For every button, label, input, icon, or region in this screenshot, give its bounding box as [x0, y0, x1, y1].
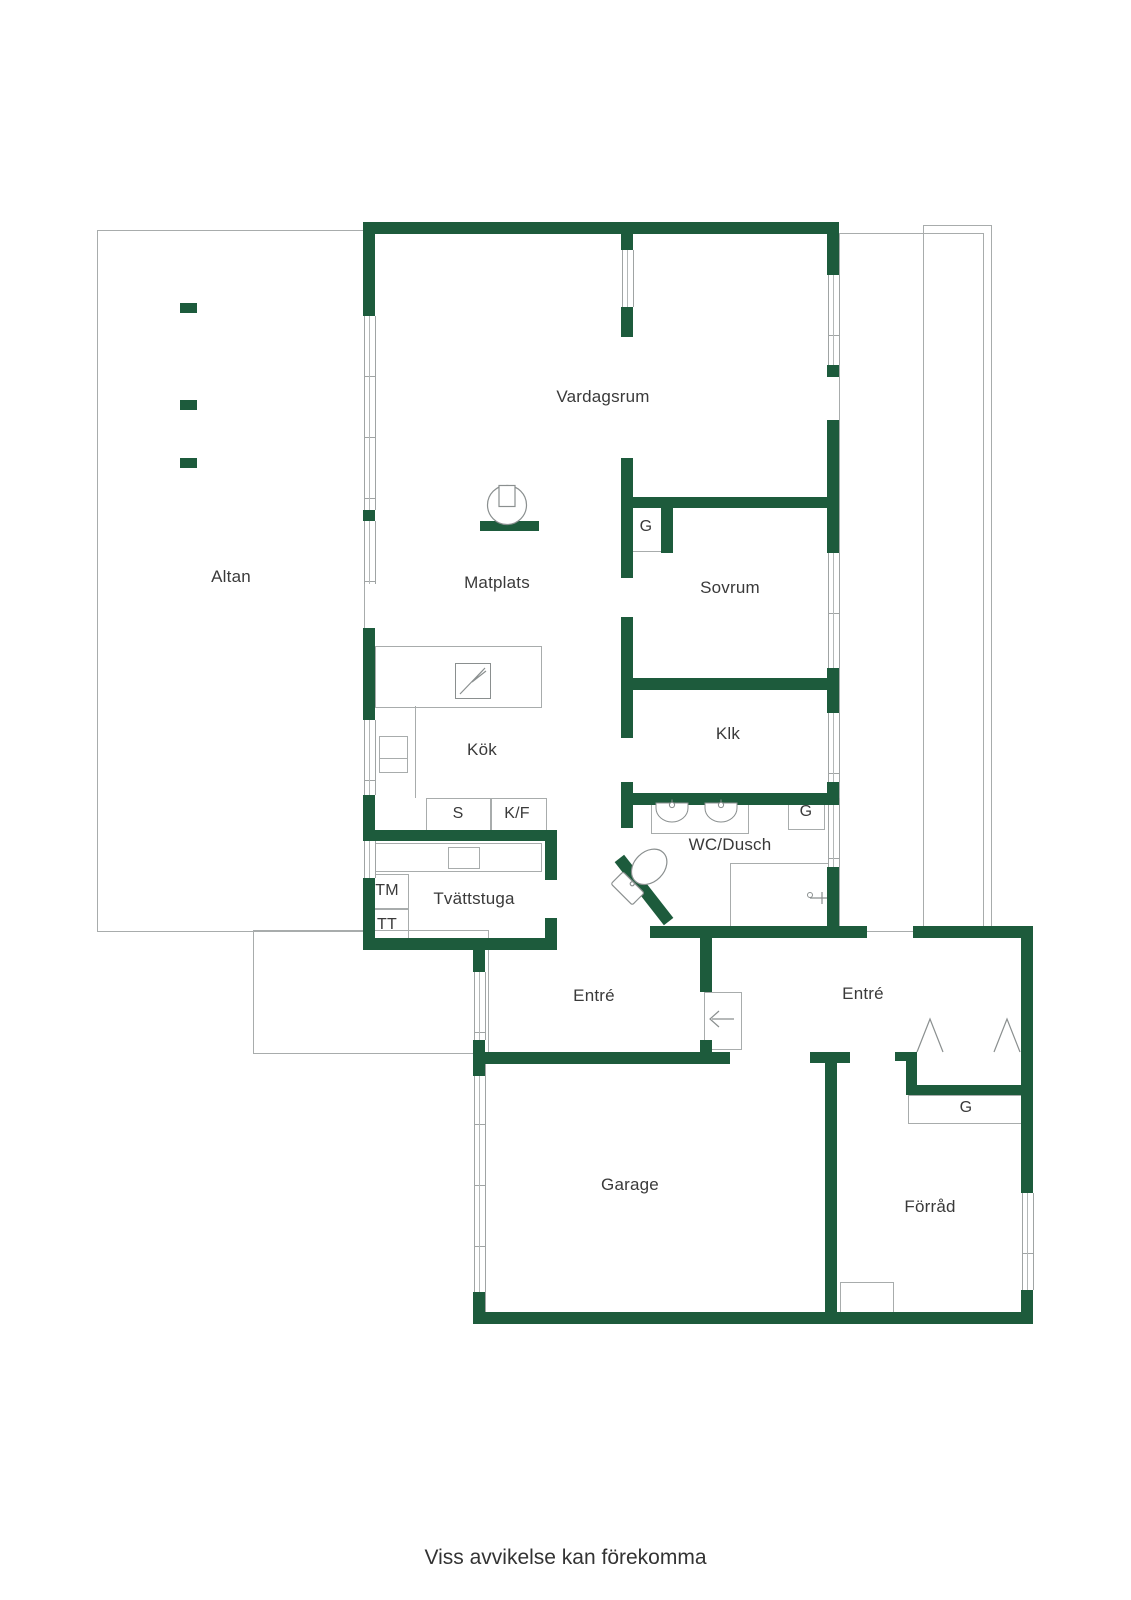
outline-box [448, 847, 480, 869]
direction-arrow-icon [706, 1004, 738, 1034]
wall-segment [363, 222, 839, 234]
room-label-entre-inner: Entré [573, 986, 615, 1006]
wall-segment [473, 1064, 485, 1076]
terrace-post [180, 303, 197, 313]
sink-icon [653, 799, 691, 831]
wall-segment [363, 830, 545, 841]
closet-label-g-sovrum: G [640, 518, 653, 536]
wall-segment [621, 458, 633, 578]
terrace-post [180, 458, 197, 468]
window [364, 720, 376, 795]
room-label-tvattstuga: Tvättstuga [433, 889, 514, 909]
room-label-klk: Klk [716, 724, 740, 744]
wall-segment [628, 678, 839, 690]
stove-icon [455, 663, 491, 699]
wall-segment [473, 1052, 730, 1064]
room-label-sovrum: Sovrum [700, 578, 760, 598]
room-label-kok: Kök [467, 740, 497, 760]
window [828, 713, 840, 782]
wall-segment [363, 628, 375, 720]
wall-segment [621, 782, 633, 828]
gray-line [633, 551, 661, 552]
wall-segment [363, 222, 375, 316]
wall-segment [827, 668, 839, 713]
toilet-icon [607, 838, 673, 914]
wall-segment [827, 365, 839, 377]
wall-segment [363, 510, 375, 521]
gray-line [415, 706, 416, 798]
outline-box [379, 736, 408, 759]
wall-segment [628, 497, 839, 508]
wall-segment [827, 420, 839, 553]
wall-segment [621, 234, 633, 250]
appliance-label-kf: K/F [504, 805, 530, 823]
window [828, 798, 840, 867]
closet-label-g-entre: G [960, 1099, 973, 1117]
wall-segment [827, 222, 839, 275]
room-label-altan: Altan [211, 567, 251, 587]
wall-segment [473, 948, 485, 972]
outline-box [840, 1282, 894, 1315]
door-swing-icon [991, 1016, 1023, 1054]
room-label-matplats: Matplats [464, 573, 530, 593]
shower-faucet-icon [806, 887, 830, 909]
wall-segment [1021, 926, 1033, 1193]
room-label-entre-outer: Entré [842, 984, 884, 1004]
wall-segment [650, 926, 867, 938]
window [474, 1064, 486, 1312]
closet-label-g-wc: G [800, 803, 813, 821]
terrace-post [180, 400, 197, 410]
window [364, 837, 376, 878]
appliance-label-s: S [453, 805, 464, 823]
wall-segment [913, 926, 1033, 938]
fireplace-icon [478, 482, 536, 528]
outline-box [923, 225, 992, 932]
wall-segment [621, 307, 633, 337]
wall-segment [700, 938, 712, 992]
door-swing-icon [914, 1016, 946, 1054]
window [364, 521, 376, 584]
window [364, 316, 376, 510]
disclaimer-text: Viss avvikelse kan förekomma [0, 1546, 1131, 1570]
room-label-forrad: Förråd [904, 1197, 955, 1217]
appliance-label-tt: TT [377, 916, 397, 934]
wall-segment [363, 938, 557, 950]
appliance-label-tm: TM [375, 882, 399, 900]
wall-segment [700, 1040, 712, 1052]
room-label-garage: Garage [601, 1175, 659, 1195]
room-label-vardagsrum: Vardagsrum [556, 387, 649, 407]
wall-segment [661, 508, 673, 553]
wall-segment [906, 1085, 1033, 1095]
window [474, 972, 486, 1040]
wall-segment [473, 1292, 485, 1312]
window [622, 250, 634, 307]
room-label-wc-dusch: WC/Dusch [689, 835, 772, 855]
window [1022, 1193, 1034, 1290]
outline-box [379, 758, 408, 773]
wall-segment [545, 830, 557, 880]
wall-segment [473, 1312, 1033, 1324]
floor-plan: Vardagsrum Altan Matplats Sovrum Kök Klk… [0, 0, 1131, 1600]
window [828, 553, 840, 668]
window [828, 275, 840, 365]
sink-icon [702, 799, 740, 831]
wall-segment [825, 1052, 837, 1324]
